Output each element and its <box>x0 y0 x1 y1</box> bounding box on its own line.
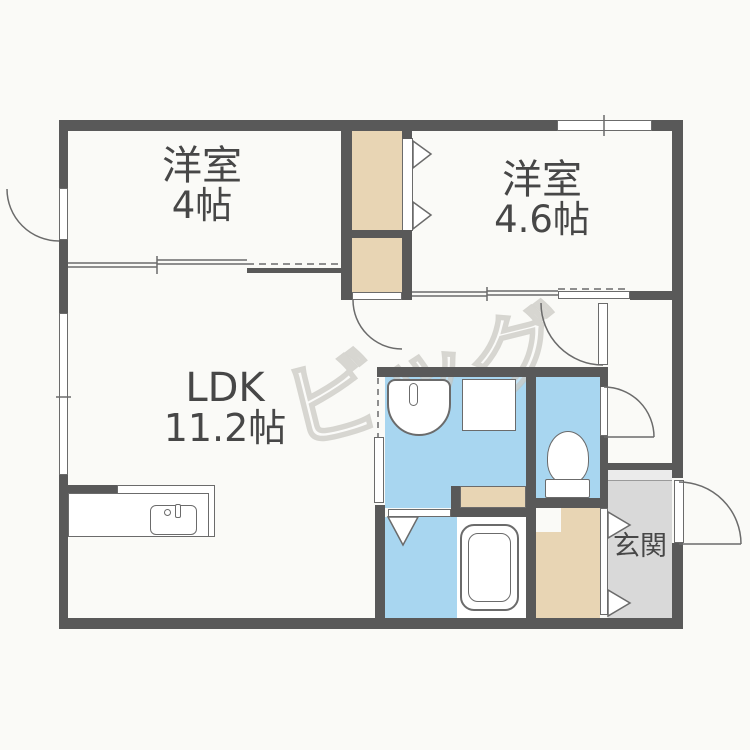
room1-name: 洋室 <box>112 146 292 187</box>
folding-door-arrow-icon <box>413 141 431 168</box>
floor-plan: ビッグ <box>0 0 750 750</box>
room2-name: 洋室 <box>452 160 632 201</box>
ldk-label: LDK 11.2帖 <box>125 368 325 448</box>
linework-layer <box>0 0 750 750</box>
closet-door-arc <box>353 300 402 349</box>
genkan-label: 玄関 <box>600 533 680 561</box>
folding-door-arrow-icon <box>413 202 431 229</box>
ldk-area: 11.2帖 <box>125 409 325 448</box>
room1-area: 4帖 <box>112 187 292 225</box>
window-swing-arc <box>7 189 59 241</box>
ldk-name: LDK <box>125 368 325 409</box>
room1-label: 洋室 4帖 <box>112 146 292 225</box>
genkan-name: 玄関 <box>600 533 680 561</box>
toilet-door-arc <box>604 387 654 437</box>
room2-label: 洋室 4.6帖 <box>452 160 632 239</box>
folding-door-arrow-icon <box>388 517 418 545</box>
room2-area: 4.6帖 <box>452 201 632 239</box>
folding-door-arrow-icon <box>608 590 630 616</box>
entry-door-arc <box>679 482 741 544</box>
room2-door-arc <box>541 303 603 365</box>
